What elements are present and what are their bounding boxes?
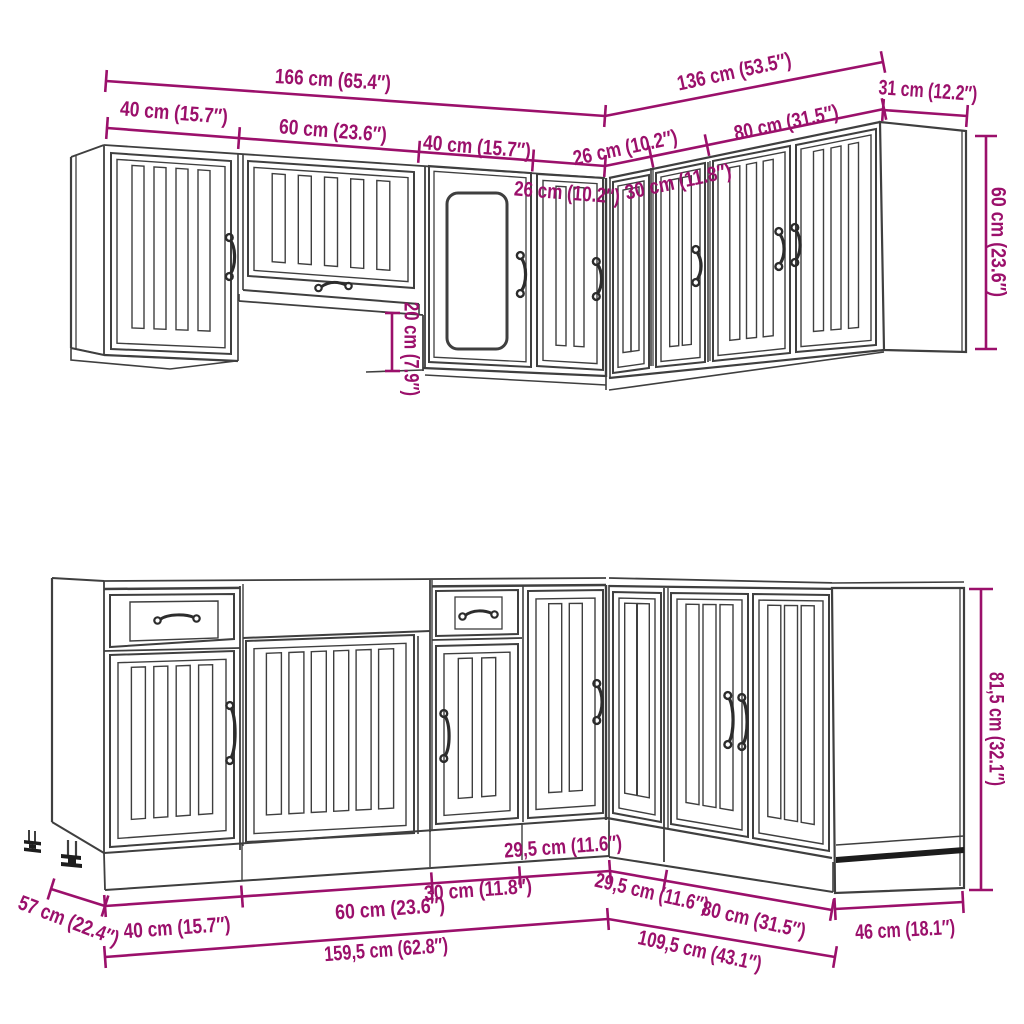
svg-text:81,5 cm (32.1″): 81,5 cm (32.1″) xyxy=(984,672,1007,786)
svg-text:60 cm (23.6″): 60 cm (23.6″) xyxy=(986,187,1009,297)
svg-text:20 cm (7.9″): 20 cm (7.9″) xyxy=(399,302,422,396)
